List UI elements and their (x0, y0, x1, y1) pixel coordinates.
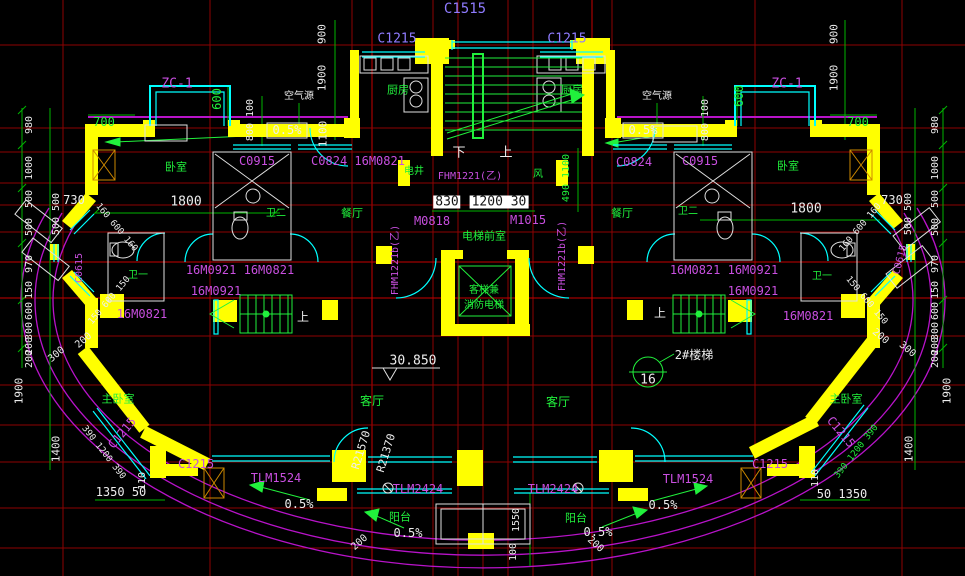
dim-right-edge-1000: 1000 (931, 156, 941, 180)
dim-left-edge-200b: 200 (25, 350, 35, 368)
diag-dim-right-upper: 160 600 160 (838, 202, 883, 253)
master-left: 主卧室 (102, 394, 135, 405)
dim-600-right: 600 (733, 85, 745, 107)
dim-200-right: 200 (870, 327, 890, 346)
c0824-right: C0824 (616, 156, 652, 168)
zc1-right: ZC-1 (771, 78, 802, 91)
dim-left-edge-600: 600 (25, 302, 35, 320)
elevator-name-line2: 消防电梯 (464, 301, 504, 311)
dim-right-edge-600: 600 (931, 302, 941, 320)
stair-up-center-label: 上 (499, 147, 512, 160)
dim-1550: 1550 (512, 508, 522, 532)
elevation-30850: 30.850 (390, 355, 437, 368)
dim-left-edge-150: 150 (25, 281, 35, 299)
dim-left-edge-1000: 1000 (25, 156, 35, 180)
dim-800-100-left: 800 100 (246, 99, 256, 141)
slope-bottom-left: 0.5% (285, 498, 314, 510)
stair2-ref: 2#楼梯 (675, 349, 713, 361)
tlm2424-left: TLM2424 (393, 483, 444, 495)
c1215-top-right: C1215 (547, 33, 586, 46)
dim-left-edge-500a: 500 (25, 190, 35, 208)
air-source-left: 空气源 (284, 92, 314, 102)
bedroom-left: 卧室 (165, 162, 187, 173)
zc1-left: ZC-1 (161, 78, 192, 91)
dim-left-inner-500s: 500 500 (52, 193, 62, 235)
dim-50-1350-right: 50 1350 (817, 488, 868, 500)
c1215-bottom-left: C1215 (178, 458, 214, 470)
stair-down-label: 下 (452, 147, 465, 160)
dim-200-left: 200 (74, 331, 94, 350)
dim-right-edge-150: 150 (931, 281, 941, 299)
tlm2424-right: TLM2424 (528, 483, 579, 495)
air-source-right: 空气源 (642, 92, 672, 102)
r21370: R21370 (375, 432, 397, 473)
slope-top-left: 0.5% (273, 124, 302, 136)
cad-floor-plan-viewport[interactable]: C1515C1215C1215ZC-1ZC-1厨房厨房空气源空气源0.5%0.5… (0, 0, 965, 576)
dim-900-right: 900 (829, 24, 840, 44)
c0915-right: C0915 (682, 155, 718, 167)
dining-right: 餐厅 (611, 208, 633, 219)
c1215-bottom-right-diag: C1215 (825, 414, 857, 449)
c0824-16m0821-left: C0824 16M0821 (311, 155, 405, 167)
slope-bottom-right: 0.5% (649, 499, 678, 511)
c1215-bottom-left-diag: C1215 (106, 415, 138, 450)
balcony-left: 阳台 (389, 512, 411, 523)
door-code-right-2: 16M0921 (728, 285, 779, 297)
tlm1524-left: TLM1524 (251, 472, 302, 484)
slope-bottom-center-left: 0.5% (394, 527, 423, 539)
dim-800-100-right: 800 100 (701, 99, 711, 141)
electric-shaft: 电井 (404, 167, 424, 177)
dim-left-edge-980: 980 (25, 116, 35, 134)
door-code-left-3: 16M0821 (117, 308, 168, 320)
dim-730-left: 730 (63, 194, 85, 206)
dim-left-1900: 1900 (14, 378, 25, 405)
dim-830: 830 (433, 196, 460, 209)
dim-900-left: 900 (317, 24, 328, 44)
dim-110-left: 110 (138, 472, 148, 490)
duct-shaft: 风 (533, 170, 543, 180)
dining-left: 餐厅 (341, 208, 363, 219)
dim-right-inner-500s: 500 500 (904, 193, 914, 235)
master-right: 主卧室 (830, 394, 863, 405)
bath2-right: 卫二 (678, 207, 698, 217)
annotation-labels-layer: C1515C1215C1215ZC-1ZC-1厨房厨房空气源空气源0.5%0.5… (0, 0, 965, 576)
m1015: M1015 (510, 214, 546, 226)
c0615-left: C0615 (75, 253, 85, 283)
dim-1900-right: 1900 (829, 65, 840, 92)
door-code-left-2: 16M0921 (191, 285, 242, 297)
dim-600-left: 600 (211, 88, 223, 110)
dim-300-left: 300 (47, 345, 67, 364)
fhm-door-top: FHM1221(乙) (438, 172, 502, 182)
fhm-door-left: FHM1221b(乙) (391, 225, 401, 295)
bath2-left: 卫二 (266, 209, 286, 219)
dim-700-right: 700 (847, 116, 869, 128)
dim-right-edge-970: 970 (931, 255, 941, 273)
door-code-right-3: 16M0821 (783, 310, 834, 322)
dim-left-1400: 1400 (51, 436, 62, 463)
bedroom-right: 卧室 (777, 161, 799, 172)
elevator-lobby: 电梯前室 (462, 231, 506, 242)
c1215-bottom-right: C1215 (752, 458, 788, 470)
living-left: 客厅 (360, 395, 384, 407)
c1215-top-left: C1215 (377, 33, 416, 46)
dim-1900-left: 1900 (317, 65, 328, 92)
dim-right-1400: 1400 (904, 436, 915, 463)
fhm-door-right: FHM1221b(乙) (558, 221, 568, 291)
kitchen-left: 厨房 (387, 85, 409, 96)
diag-dim-left-upper: 160 600 160 (93, 202, 138, 253)
detail-16: 16 (640, 374, 656, 387)
balcony-right: 阳台 (565, 513, 587, 524)
dim-left-edge-500b: 500 (25, 218, 35, 236)
dim-100: 100 (509, 543, 519, 561)
dim-right-1900: 1900 (942, 378, 953, 405)
c1515: C1515 (444, 2, 486, 16)
living-right: 客厅 (546, 396, 570, 408)
dim-right-edge-500a: 500 (931, 190, 941, 208)
diag-dim-right-lower: 150 600 150 (843, 275, 888, 326)
dim-700-left: 700 (93, 116, 115, 128)
c0915-left: C0915 (239, 155, 275, 167)
dim-right-edge-980: 980 (931, 116, 941, 134)
dim-110-right: 110 (811, 469, 821, 487)
dim-1200-30: 1200 30 (470, 196, 529, 209)
kitchen-right: 厨房 (561, 85, 583, 96)
stair-up-left-label: 上 (297, 311, 309, 323)
tlm1524-right: TLM1524 (663, 473, 714, 485)
c0615-right: C0615 (892, 244, 909, 276)
door-codes-right-1: 16M0821 16M0921 (670, 264, 778, 276)
dim-right-edge-200b: 200 (931, 350, 941, 368)
slope-top-right: 0.5% (629, 124, 658, 136)
dim-200-bottom-left: 200 (350, 533, 370, 553)
dim-1100-left: 1100 (318, 121, 329, 148)
dim-730-right: 730 (881, 194, 903, 206)
r21570: R21570 (350, 429, 372, 470)
dim-1800-right: 1800 (790, 203, 821, 216)
bath1-right: 卫一 (812, 272, 832, 282)
slope-bottom-center-right: 0.5% (584, 526, 613, 538)
door-codes-left-1: 16M0921 16M0821 (186, 264, 294, 276)
m0818: M0818 (414, 215, 450, 227)
dim-left-edge-970: 970 (25, 255, 35, 273)
dim-1800-left: 1800 (170, 196, 201, 209)
dim-490-1100: 490 1100 (562, 154, 572, 202)
dim-right-edge-500b: 500 (931, 218, 941, 236)
stair-up-right-label: 上 (654, 307, 666, 319)
dim-300-right: 300 (897, 340, 917, 359)
elevator-name-line1: 客梯兼 (469, 286, 499, 296)
